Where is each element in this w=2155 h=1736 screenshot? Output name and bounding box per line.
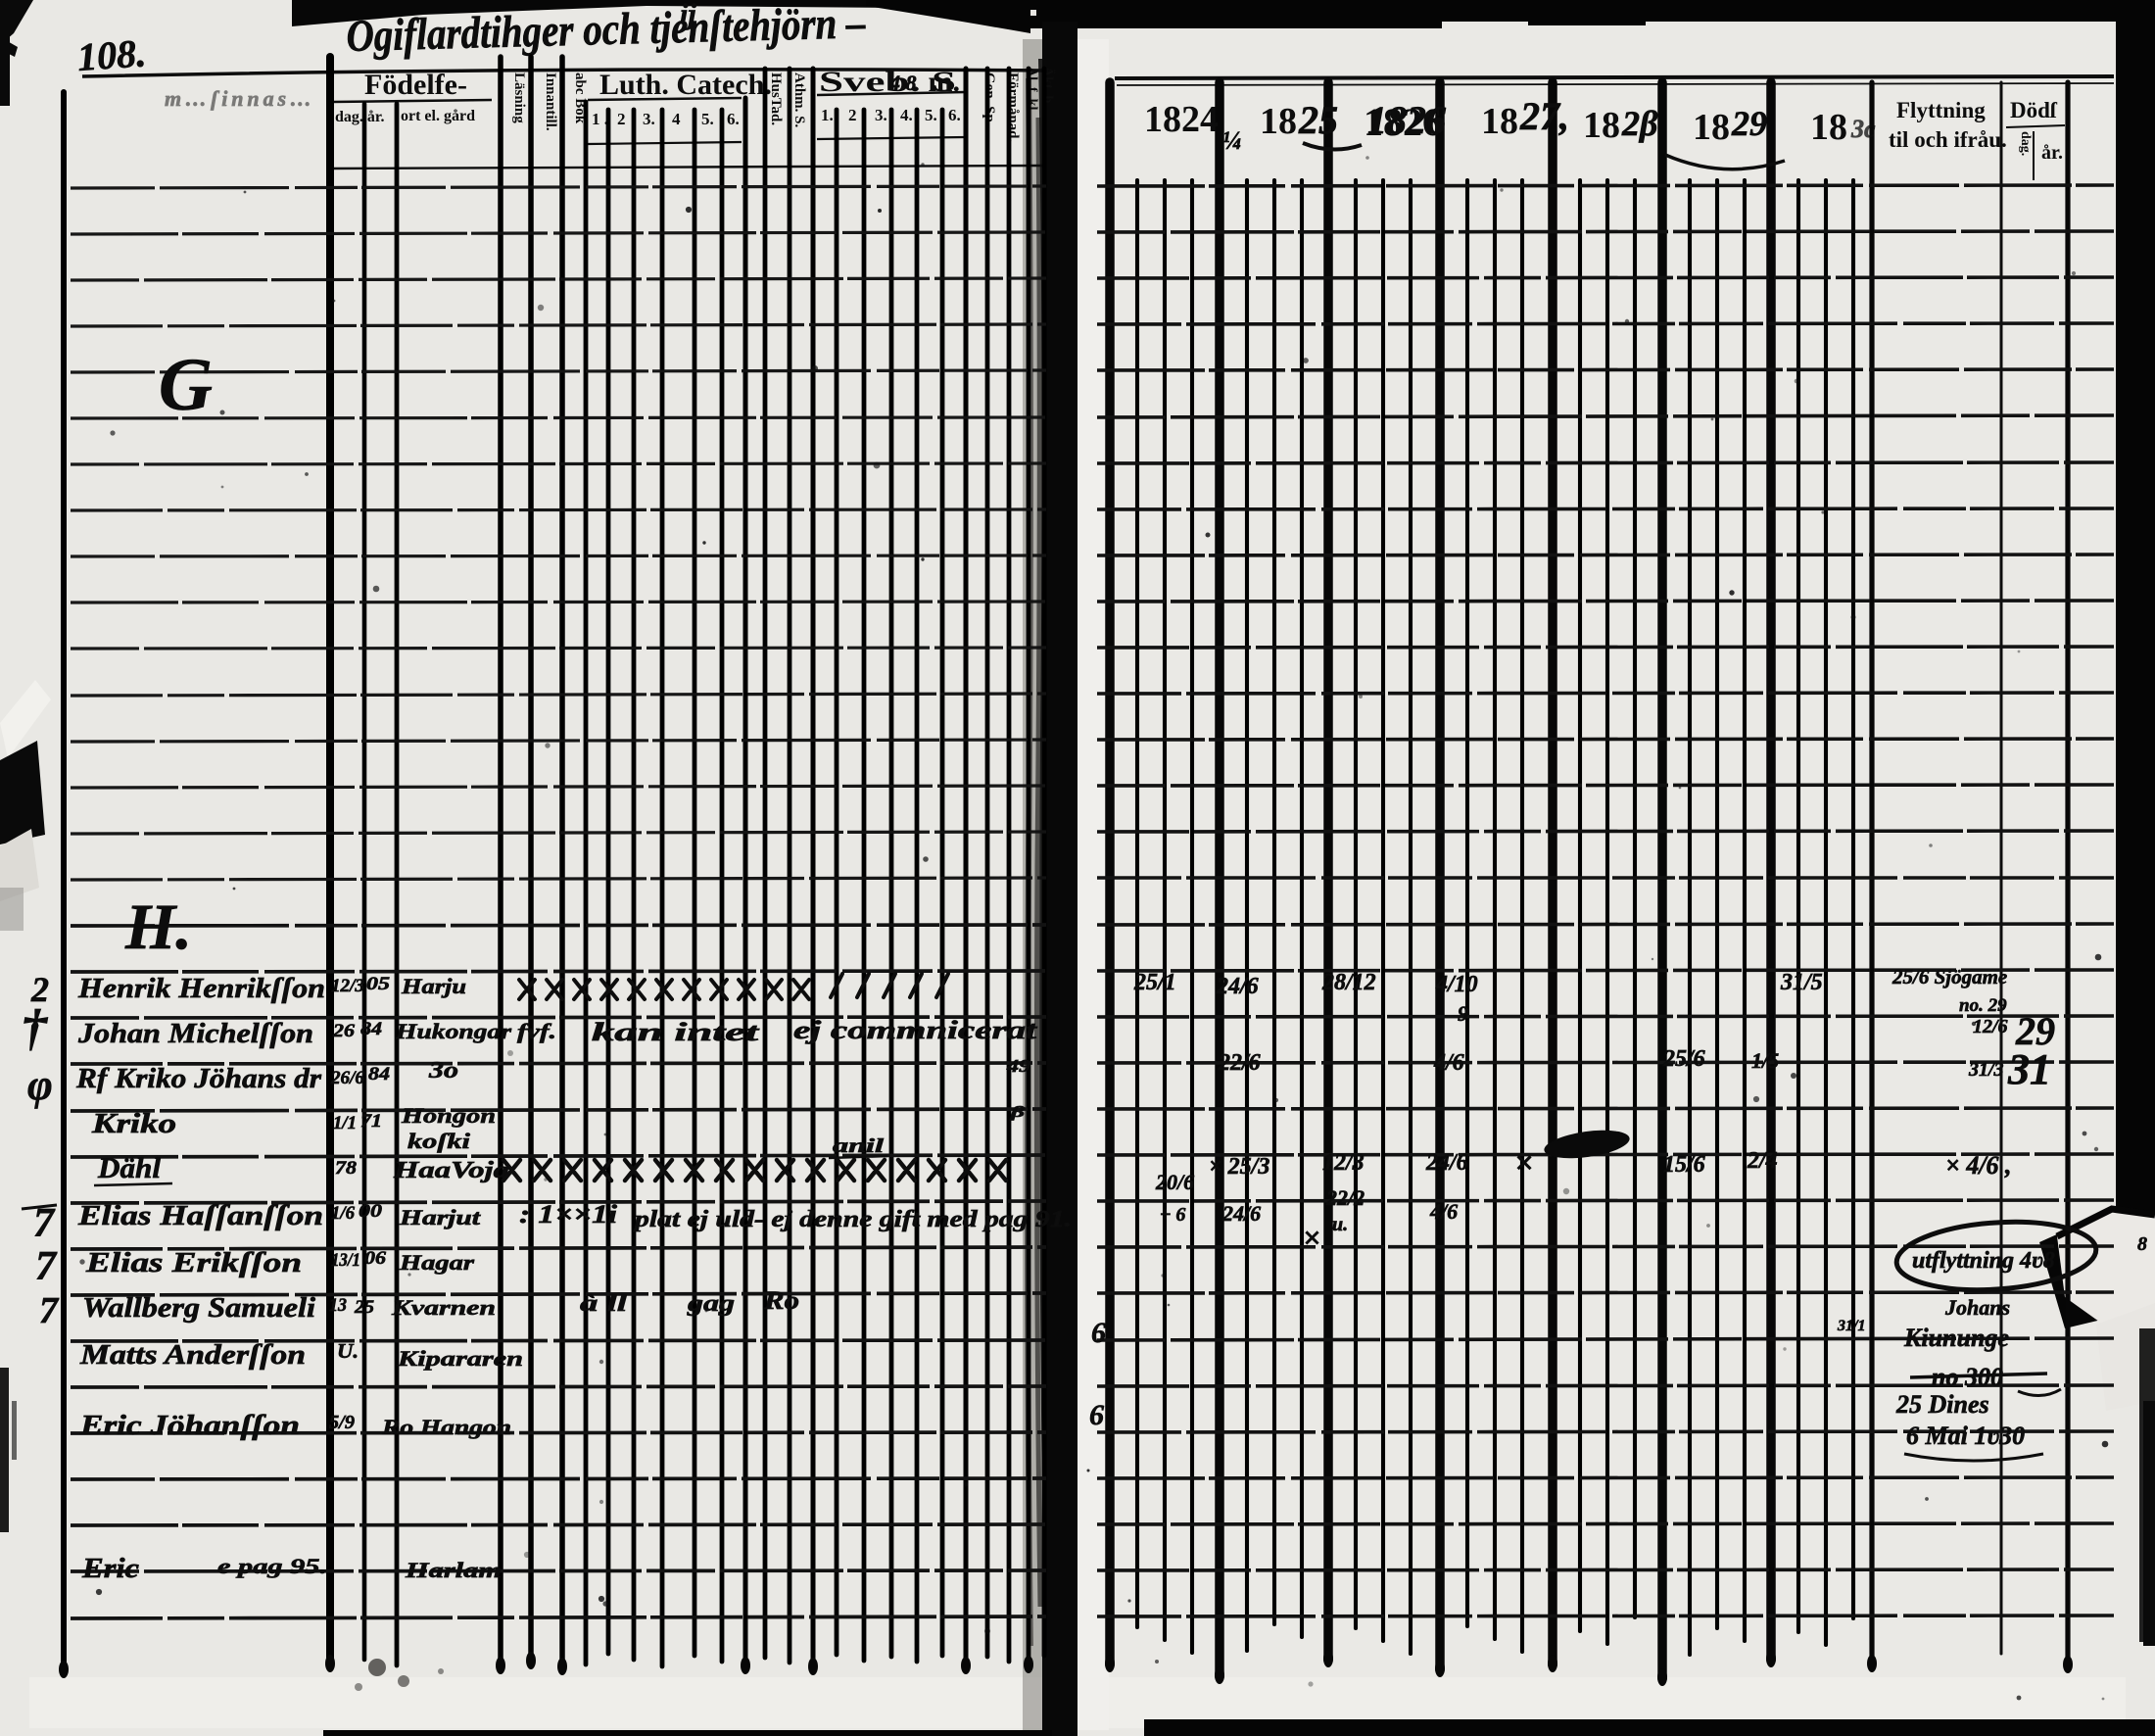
- svg-text:24/6: 24/6: [1425, 1150, 1468, 1176]
- svg-text:6 Mai 1ʋ30: 6 Mai 1ʋ30: [1906, 1422, 2025, 1450]
- svg-text:Hongon: Hongon: [401, 1103, 496, 1128]
- svg-text:27,: 27,: [1519, 94, 1569, 138]
- svg-text:Matts Anderſſon: Matts Anderſſon: [79, 1340, 306, 1371]
- svg-text:Hukongar: Hukongar: [395, 1019, 512, 1043]
- svg-text:à ll: à ll: [580, 1291, 627, 1317]
- svg-text:Rf Kriko Jöhans dr: Rf Kriko Jöhans dr: [75, 1064, 322, 1094]
- svg-text:26: 26: [332, 1021, 356, 1041]
- svg-text:25 Dines: 25 Dines: [1895, 1390, 1989, 1419]
- svg-text:7: 7: [39, 1290, 60, 1331]
- svg-text:Ro Hangon: Ro Hangon: [381, 1415, 511, 1439]
- svg-text:× 25/3: × 25/3: [1209, 1154, 1269, 1180]
- svg-text:24/6: 24/6: [1221, 1201, 1261, 1226]
- svg-text:20/6: 20/6: [1155, 1170, 1194, 1194]
- svg-text:4 8: 4 8: [888, 71, 917, 95]
- svg-text:Johan Michelſſon: Johan Michelſſon: [77, 1019, 313, 1049]
- svg-text:Kvarnen: Kvarnen: [391, 1295, 496, 1320]
- svg-text:108.: 108.: [75, 30, 147, 79]
- svg-text:6.: 6.: [948, 106, 961, 124]
- svg-text:Dähl: Dähl: [97, 1152, 162, 1184]
- svg-text:22/6: 22/6: [1218, 1050, 1261, 1076]
- svg-text:84: 84: [368, 1064, 390, 1085]
- svg-text:koſki: koſki: [407, 1129, 471, 1153]
- svg-text:4: 4: [672, 110, 681, 128]
- svg-text:2β: 2β: [1621, 104, 1658, 143]
- svg-text:49: 49: [1006, 1056, 1030, 1076]
- svg-text:5/9: 5/9: [329, 1412, 355, 1433]
- svg-text:12/3: 12/3: [1322, 1150, 1365, 1176]
- svg-text:4/6: 4/6: [1429, 1199, 1458, 1224]
- svg-text:1/6: 1/6: [331, 1203, 355, 1224]
- svg-text:25/6 Sjögame: 25/6 Sjögame: [1892, 965, 2007, 989]
- svg-text:Eric: Eric: [81, 1554, 140, 1584]
- svg-text:× 4/6 ,: × 4/6 ,: [1945, 1151, 2012, 1180]
- svg-text:Elias Haſſanſſon: Elias Haſſanſſon: [77, 1201, 323, 1231]
- svg-text:G: G: [159, 344, 213, 426]
- svg-text:Innantill.: Innantill.: [543, 72, 558, 131]
- svg-text:Hagar: Hagar: [399, 1250, 475, 1275]
- svg-text:anil: anil: [833, 1135, 885, 1157]
- svg-text:Harjut: Harjut: [399, 1205, 482, 1230]
- svg-text:Flyttning: Flyttning: [1896, 98, 1986, 122]
- svg-text:26/6: 26/6: [330, 1068, 365, 1088]
- svg-text:Harju: Harju: [401, 974, 466, 998]
- svg-text:Wallberg Samueli: Wallberg Samueli: [82, 1293, 315, 1324]
- svg-text:06: 06: [364, 1248, 387, 1269]
- svg-text:: 1××1i: : 1××1i: [519, 1200, 618, 1229]
- svg-text:31: 31: [2007, 1045, 2051, 1093]
- svg-text:kan intet: kan intet: [592, 1018, 759, 1046]
- svg-text:18: 18: [1810, 107, 1847, 148]
- svg-text:Dödſ: Dödſ: [2010, 98, 2058, 122]
- svg-text:05: 05: [366, 974, 391, 994]
- svg-text:gag: gag: [687, 1291, 735, 1317]
- svg-text:4.: 4.: [900, 106, 913, 124]
- svg-text:til och ifråu.: til och ifråu.: [1889, 127, 2007, 152]
- svg-text:2/4: 2/4: [1747, 1148, 1778, 1174]
- svg-text:H.: H.: [124, 892, 192, 963]
- svg-text:Athm. S.: Athm. S.: [791, 72, 807, 128]
- svg-text:18: 18: [1260, 101, 1297, 142]
- svg-text:Kipararen: Kipararen: [397, 1346, 523, 1371]
- svg-text:plat ej uld- ej denne gift med: plat ej uld- ej denne gift med pag 91.: [633, 1207, 1072, 1232]
- svg-text:ij: ij: [680, 0, 696, 30]
- svg-text:fvf.: fvf.: [517, 1019, 556, 1043]
- svg-text:dag. år.: dag. år.: [335, 109, 385, 125]
- svg-text:Johans: Johans: [1944, 1295, 2010, 1320]
- svg-text:78: 78: [335, 1158, 358, 1179]
- svg-text:7: 7: [35, 1244, 58, 1289]
- svg-text:1/5: 1/5: [1751, 1048, 1779, 1073]
- svg-text:9: 9: [1458, 1001, 1468, 1026]
- svg-text:22/2: 22/2: [1325, 1185, 1365, 1210]
- svg-text:†: †: [22, 1000, 48, 1056]
- svg-text:HaaVoja: HaaVoja: [393, 1158, 509, 1183]
- svg-text:×: ×: [1303, 1220, 1320, 1255]
- svg-text:dag.: dag.: [2018, 131, 2033, 156]
- svg-text:6: 6: [1091, 1317, 1106, 1349]
- svg-text:¼: ¼: [1222, 126, 1242, 155]
- svg-text:β: β: [1009, 1104, 1026, 1121]
- svg-text:8: 8: [2137, 1233, 2147, 1255]
- svg-text:18: 18: [1693, 107, 1730, 148]
- svg-text:29: 29: [1731, 104, 1767, 143]
- svg-text:×: ×: [1514, 1145, 1533, 1181]
- svg-text:18: 18: [1481, 101, 1518, 142]
- svg-text:5.: 5.: [701, 110, 714, 128]
- svg-text:ort el. gård: ort el. gård: [401, 108, 475, 124]
- svg-text:Harlam: Harlam: [405, 1558, 502, 1582]
- svg-text:5.: 5.: [925, 106, 937, 124]
- svg-text:4/10: 4/10: [1435, 972, 1478, 997]
- svg-text:Läsning: Läsning: [511, 72, 527, 123]
- svg-text:13/1: 13/1: [331, 1250, 360, 1271]
- svg-text:25/6: 25/6: [1662, 1046, 1705, 1072]
- svg-text:m…ſinnas…: m…ſinnas…: [165, 86, 311, 111]
- svg-text:U.: U.: [337, 1339, 359, 1363]
- svg-text:Kriko: Kriko: [91, 1109, 176, 1139]
- svg-text:12/6: 12/6: [1973, 1016, 2008, 1037]
- svg-text:2: 2: [617, 110, 626, 128]
- svg-text:31/3: 31/3: [1968, 1059, 2004, 1081]
- svg-text:φ: φ: [27, 1061, 53, 1109]
- svg-text:25/1: 25/1: [1133, 970, 1176, 995]
- svg-text:Födelfe-: Födelfe-: [364, 69, 467, 101]
- svg-text:Henrik Henrikſſon: Henrik Henrikſſon: [77, 974, 325, 1004]
- svg-text:25: 25: [354, 1297, 375, 1318]
- svg-text:1 .: 1 .: [592, 110, 608, 128]
- svg-text:24/6: 24/6: [1216, 974, 1259, 999]
- svg-text:12/3: 12/3: [331, 976, 364, 996]
- svg-text:utflyttning 4ʋ8: utflyttning 4ʋ8: [1912, 1248, 2055, 1274]
- svg-text:1824: 1824: [1144, 99, 1219, 140]
- svg-text:6: 6: [1089, 1399, 1104, 1431]
- svg-text:1/1: 1/1: [333, 1113, 357, 1133]
- svg-text:no. 29: no. 29: [1959, 995, 2007, 1016]
- svg-text:e pag 95.: e pag 95.: [217, 1554, 327, 1578]
- svg-text:u.: u.: [1332, 1214, 1348, 1235]
- svg-text:71: 71: [360, 1111, 382, 1132]
- svg-text:+ 6: + 6: [1160, 1204, 1185, 1226]
- svg-text:15/6: 15/6: [1663, 1152, 1705, 1178]
- svg-text:Eric Jöhanſſon: Eric Jöhanſſon: [79, 1411, 300, 1441]
- svg-text:2: 2: [848, 106, 857, 124]
- svg-text:28/12: 28/12: [1321, 970, 1376, 995]
- svg-text:13: 13: [329, 1295, 347, 1316]
- svg-text:år.: år.: [2041, 142, 2063, 164]
- svg-text:1826: 1826: [1367, 98, 1446, 142]
- svg-text:1.: 1.: [821, 106, 834, 124]
- svg-text:18: 18: [1583, 105, 1620, 146]
- svg-text:Elias Erikſſon: Elias Erikſſon: [85, 1248, 302, 1278]
- svg-text:3c: 3c: [1850, 115, 1876, 143]
- svg-text:84: 84: [360, 1019, 382, 1039]
- svg-text:3.: 3.: [875, 106, 887, 124]
- svg-text:4/6: 4/6: [1433, 1050, 1464, 1076]
- svg-text:ej commnicerat: ej commnicerat: [793, 1016, 1037, 1044]
- svg-text:Ro: Ro: [763, 1286, 799, 1315]
- svg-text:3.: 3.: [643, 110, 655, 128]
- svg-text:3o: 3o: [428, 1058, 458, 1084]
- svg-text:31/1: 31/1: [1837, 1318, 1865, 1334]
- svg-text:00: 00: [359, 1201, 383, 1222]
- svg-text:25: 25: [1298, 98, 1338, 142]
- svg-text:6.: 6.: [727, 110, 740, 128]
- svg-text:Kiununge: Kiununge: [1903, 1324, 2009, 1352]
- svg-text:31/5: 31/5: [1780, 970, 1823, 995]
- svg-text:HusTad.: HusTad.: [768, 72, 784, 125]
